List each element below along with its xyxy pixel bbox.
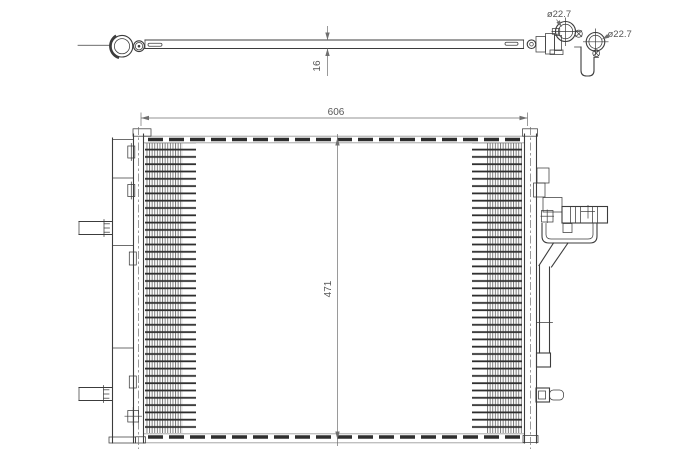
front-view: 606	[79, 107, 608, 449]
drawing-canvas: 16	[0, 0, 700, 460]
left-tank	[125, 127, 144, 449]
connector-block-c	[543, 198, 562, 213]
mounting-pin-lower	[79, 386, 112, 403]
lower-fitting	[536, 388, 564, 402]
top-left-cap	[133, 129, 151, 136]
port-top-diameter-label: ø22.7	[547, 9, 571, 20]
grommet-center-dot	[138, 45, 141, 48]
bar-slot-right	[505, 42, 518, 45]
mounting-pin-upper	[79, 220, 112, 237]
width-dimension: 606	[141, 107, 528, 126]
port-side-callout: ø22.7	[602, 29, 631, 40]
connector-block-a	[537, 168, 549, 183]
pipe-end-block	[537, 353, 551, 367]
receiver-drier-tank	[525, 127, 537, 449]
thickness-dimension: 16	[312, 26, 330, 76]
right-connector-front	[534, 168, 608, 402]
height-label: 471	[323, 280, 334, 297]
connection-block-top-view	[527, 18, 608, 77]
port-side-diameter-label: ø22.7	[608, 29, 632, 40]
pipe-grommet-dot	[530, 42, 534, 46]
u-bracket-detail	[563, 224, 572, 233]
tank-tab-4	[129, 376, 136, 388]
u-bracket-inner	[546, 224, 593, 240]
tank-cross-fitting	[125, 407, 143, 426]
top-rail	[133, 129, 538, 143]
left-mounting-bracket	[79, 138, 136, 443]
condenser-profile-bar	[145, 40, 524, 49]
left-tube-block	[145, 143, 196, 433]
bar-slot-left	[148, 43, 162, 46]
pipe-grommet-circle	[527, 40, 536, 49]
thickness-label: 16	[312, 60, 323, 72]
pipe-port-block	[562, 207, 608, 224]
bracket-strap	[581, 47, 594, 76]
right-tube-block	[472, 143, 522, 433]
inlet-flange-inner-circle	[114, 39, 129, 54]
fitting-body-1	[536, 37, 546, 53]
width-label: 606	[328, 107, 345, 118]
port-top-callout: ø22.7	[547, 9, 571, 27]
top-view: 16	[78, 9, 632, 76]
u-bracket-outer	[542, 224, 597, 244]
down-pipe	[537, 266, 553, 368]
condenser-technical-drawing: 16	[0, 0, 700, 460]
connector-block-b	[534, 183, 546, 197]
height-dimension: 471	[323, 134, 340, 446]
tank-tab-3	[129, 252, 136, 265]
